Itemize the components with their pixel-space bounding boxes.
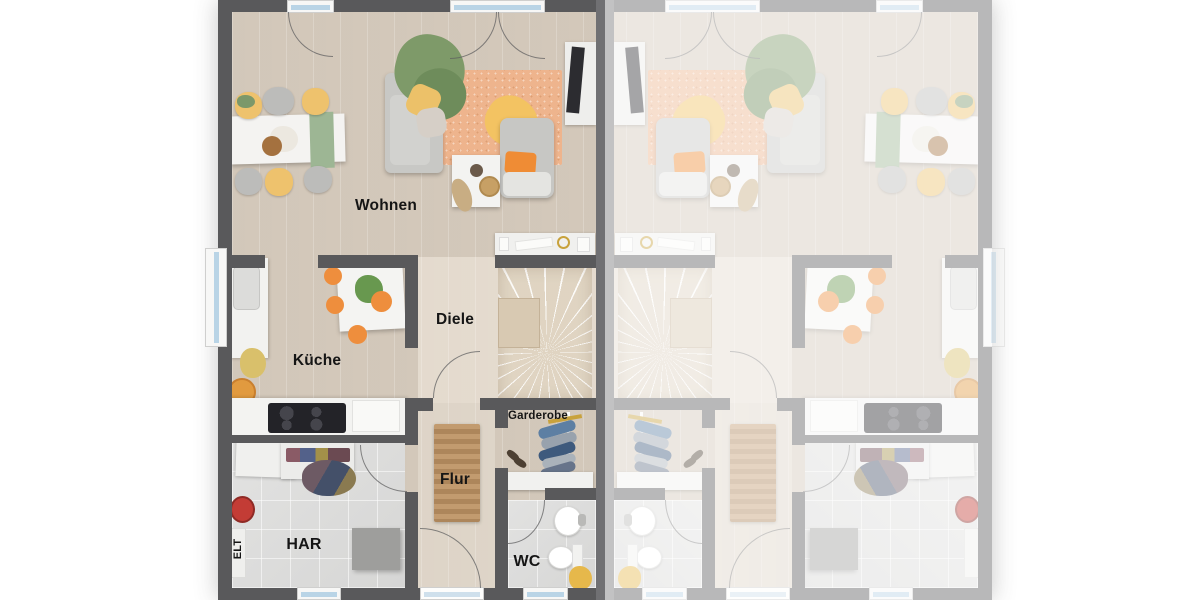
party-wall <box>596 0 605 600</box>
sideboard-box <box>577 237 590 252</box>
wc-faucet <box>578 514 586 526</box>
chair-napkin <box>955 95 973 108</box>
kitchen-window <box>983 248 1005 347</box>
cutting-board <box>352 400 400 432</box>
wall-top <box>218 0 605 12</box>
dining-chair <box>948 168 975 195</box>
wall-living-south <box>495 255 596 268</box>
window-glass <box>880 5 919 10</box>
dining-chair <box>265 168 293 196</box>
dining-chair <box>304 166 332 193</box>
wall-living-south <box>318 255 415 268</box>
wall-wc-north <box>545 488 596 500</box>
staircase-void <box>670 298 712 348</box>
floorplan-canvas: Wohnen Küche Diele Garderobe Flur HAR WC… <box>0 0 1200 600</box>
room-label-kueche: Küche <box>293 352 341 370</box>
window-glass <box>873 592 909 597</box>
wall-kitchen-south <box>805 435 992 443</box>
wc-sink <box>628 506 656 536</box>
window-glass <box>301 592 337 597</box>
door-glass <box>424 592 480 597</box>
kitchen-stool-orange <box>324 267 342 285</box>
wall-wc-west <box>495 500 508 588</box>
sideboard-ring <box>557 236 570 249</box>
kitchen-stool-orange <box>843 325 862 344</box>
room-label-har: HAR <box>286 536 321 554</box>
entry-mat <box>730 424 776 522</box>
window-glass <box>454 5 541 10</box>
window-glass <box>669 5 756 10</box>
unit-left: Wohnen Küche Diele Garderobe Flur HAR WC… <box>218 0 605 600</box>
kitchen-sink <box>950 266 977 310</box>
storage-box-gray <box>352 528 400 570</box>
entrance-door <box>726 587 790 600</box>
wc-toilet <box>548 546 574 569</box>
dining-chair <box>878 166 906 193</box>
armchair-cushion <box>503 172 551 196</box>
room-label-garderobe: Garderobe <box>508 410 568 422</box>
sideboard-box <box>499 237 509 251</box>
wall-flur-stub <box>405 398 433 411</box>
wall-wc-north <box>702 488 715 500</box>
kitchen-flowers <box>240 348 266 378</box>
wall-flur-west <box>405 492 418 588</box>
kitchen-stool-orange <box>818 291 839 312</box>
vacuum-cleaner <box>955 496 980 523</box>
towel-yellow <box>618 566 641 590</box>
window-glass <box>527 592 564 597</box>
room-label-wc: WC <box>513 553 540 571</box>
kitchen-stool-orange <box>866 296 884 314</box>
cutting-board <box>810 400 858 432</box>
laundry-pile <box>854 460 908 496</box>
laundry-shelf-items <box>860 448 924 462</box>
kitchen-stool-orange <box>348 325 367 344</box>
wall-kitchen-east <box>405 255 418 348</box>
dining-chair <box>263 87 294 115</box>
dining-chair <box>302 88 329 115</box>
room-label-diele: Diele <box>436 311 474 329</box>
wall-garderobe-west <box>702 398 715 428</box>
storage-box-gray <box>810 528 858 570</box>
vacuum-cleaner <box>230 496 255 523</box>
unit-right: Wohnen Küche Diele Garderobe Flur HAR WC… <box>605 0 992 600</box>
kitchen-sink <box>233 266 260 310</box>
room-label-wohnen: Wohnen <box>355 197 417 215</box>
kitchen-window <box>205 248 227 347</box>
towel-yellow <box>569 566 592 590</box>
har-window <box>297 587 341 600</box>
wall-flur-west <box>792 492 805 588</box>
kitchen-stool-orange <box>326 296 344 314</box>
laundry-pile <box>302 460 356 496</box>
window-glass <box>291 5 330 10</box>
wall-living-south <box>614 255 715 268</box>
party-wall <box>605 0 614 600</box>
staircase-void <box>498 298 540 348</box>
wc-window <box>523 587 568 600</box>
kitchen-stool-orange <box>371 291 392 312</box>
coffee-table-bowl <box>479 176 500 197</box>
table-bowl <box>262 136 282 156</box>
sideboard-ring <box>640 236 653 249</box>
kitchen-stool-orange <box>868 267 886 285</box>
wc-faucet <box>624 514 632 526</box>
wc-toilet <box>636 546 662 569</box>
wall-wc-north <box>614 488 665 500</box>
cooktop <box>864 403 942 433</box>
coffee-table-vase <box>727 164 740 177</box>
kitchen-flowers <box>944 348 970 378</box>
wall-living-south <box>795 255 892 268</box>
chair-napkin <box>237 95 255 108</box>
entrance-door <box>420 587 484 600</box>
wall-wc-west <box>702 500 715 588</box>
wall-kitchen-south <box>218 435 405 443</box>
table-runner <box>875 112 900 169</box>
table-runner <box>309 112 334 169</box>
dining-chair <box>235 168 262 195</box>
har-window <box>869 587 913 600</box>
room-label-elt: ELT <box>232 539 244 560</box>
room-label-flur: Flur <box>440 471 470 489</box>
coffee-table-vase <box>470 164 483 177</box>
wc-window <box>642 587 687 600</box>
wall-top <box>605 0 992 12</box>
window-glass <box>991 252 996 343</box>
wall-wc-north <box>495 488 508 500</box>
window-glass <box>214 252 219 343</box>
table-bowl <box>928 136 948 156</box>
wall-garderobe-west <box>495 398 508 428</box>
dining-chair <box>916 87 947 115</box>
window-glass <box>646 592 683 597</box>
dining-chair <box>917 168 945 196</box>
armchair-cushion <box>659 172 707 196</box>
wall-flur-stub <box>777 398 805 411</box>
sideboard-box <box>701 237 711 251</box>
dining-chair <box>881 88 908 115</box>
sideboard-box <box>620 237 633 252</box>
door-glass <box>730 592 786 597</box>
coffee-table-bowl <box>710 176 731 197</box>
cooktop <box>268 403 346 433</box>
wall-kitchen-east <box>792 255 805 348</box>
